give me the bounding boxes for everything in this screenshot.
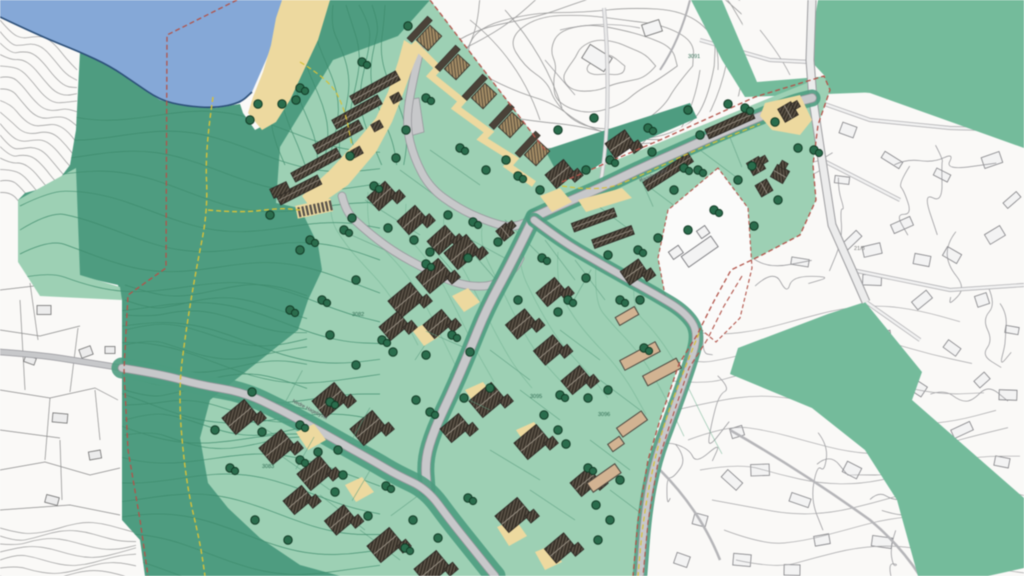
svg-text:21/8: 21/8: [854, 246, 865, 252]
svg-text:3091: 3091: [688, 54, 700, 60]
svg-text:3096: 3096: [598, 412, 610, 418]
svg-text:3083: 3083: [262, 464, 274, 470]
svg-text:3095: 3095: [530, 394, 542, 400]
svg-text:3082: 3082: [352, 312, 364, 318]
